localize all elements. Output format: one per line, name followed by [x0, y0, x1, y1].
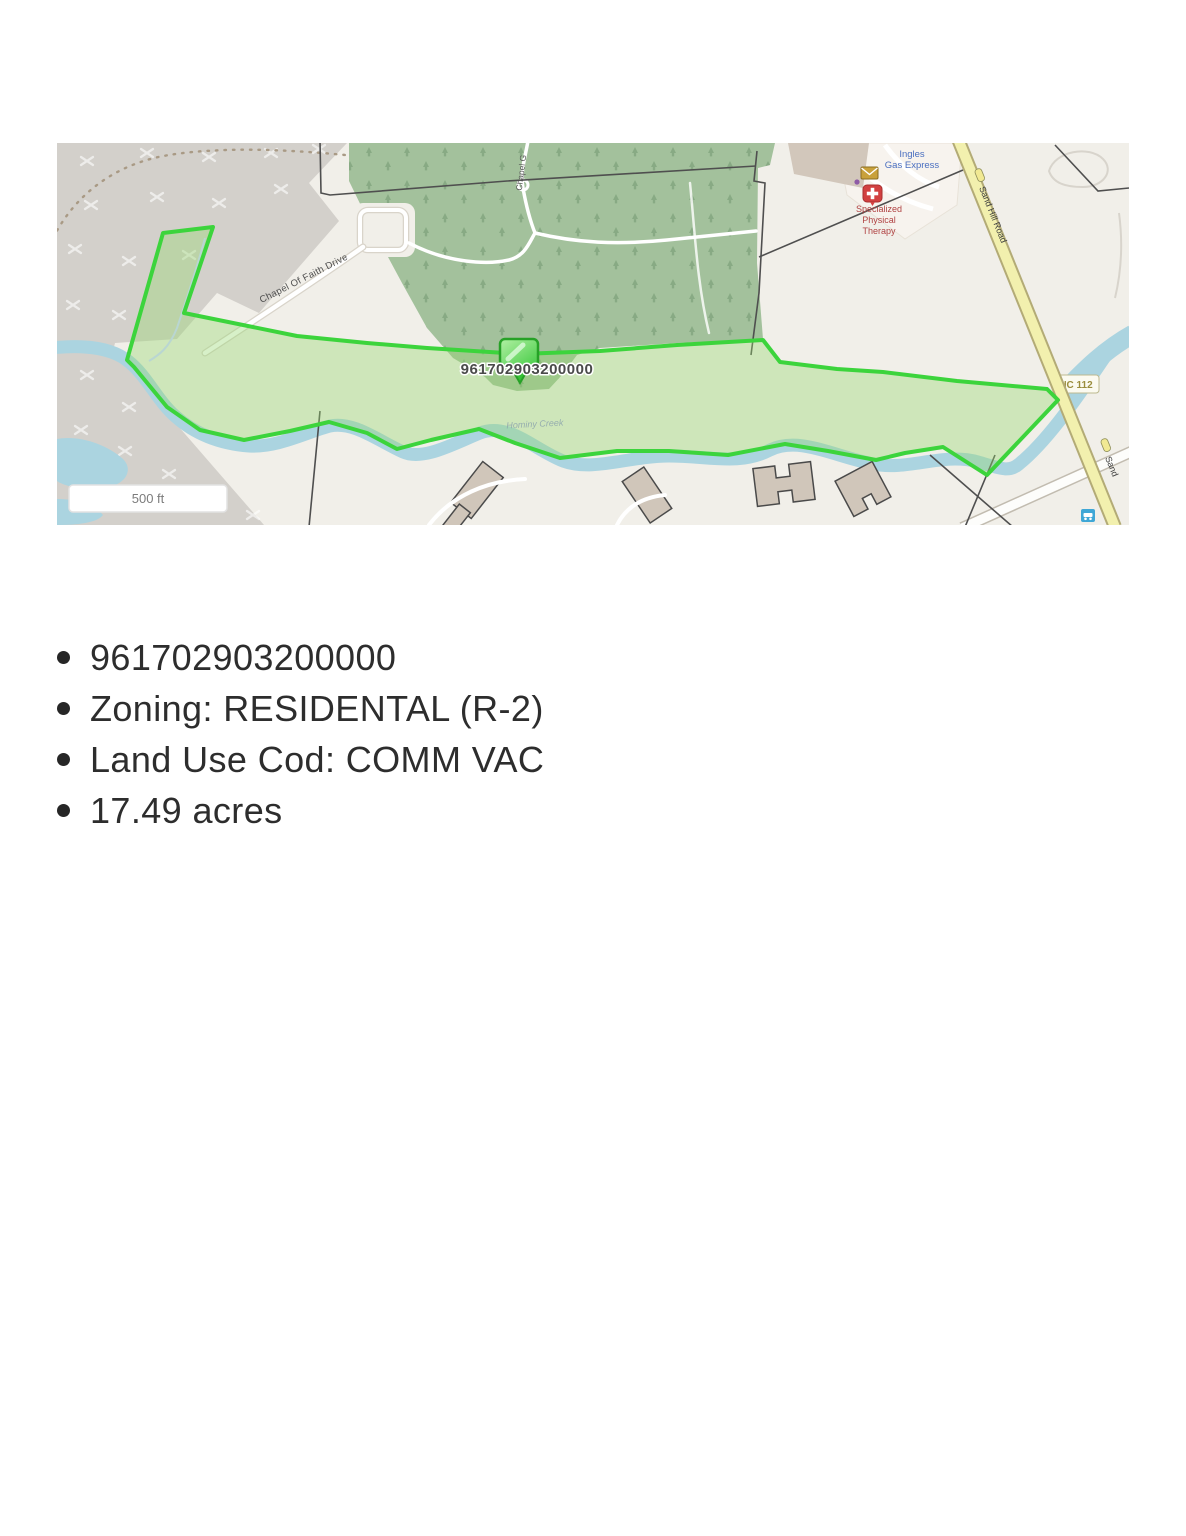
gas-express-label-line1: Ingles	[899, 149, 925, 160]
parcel-id-item: 961702903200000	[57, 632, 544, 683]
land-use-item: Land Use Cod: COMM VAC	[57, 734, 544, 785]
acreage-text: 17.49 acres	[90, 785, 283, 836]
therapy-label-line3: Therapy	[862, 226, 896, 236]
scale-bar-label: 500 ft	[132, 491, 165, 506]
carwash-icon	[1081, 509, 1095, 522]
parcel-id-text: 961702903200000	[90, 632, 396, 683]
parcel-marker-label: 961702903200000	[461, 361, 594, 378]
therapy-label-line2: Physical	[862, 215, 896, 225]
bullet-dot	[57, 651, 70, 664]
bullet-dot	[57, 804, 70, 817]
zoning-item: Zoning: RESIDENTAL (R-2)	[57, 683, 544, 734]
scale-bar: 500 ft	[69, 485, 227, 512]
gas-express-label-line2: Gas Express	[885, 160, 940, 171]
post-envelope-icon	[861, 167, 878, 179]
document-page: NC 112 Chapel Of Faith Drive Chapel G Sa…	[0, 0, 1186, 1536]
poi-dot-icon	[854, 179, 859, 184]
acreage-item: 17.49 acres	[57, 785, 544, 836]
parcel-map[interactable]: NC 112 Chapel Of Faith Drive Chapel G Sa…	[57, 143, 1129, 525]
parcel-details-list: 961702903200000 Zoning: RESIDENTAL (R-2)…	[57, 632, 544, 836]
land-use-text: Land Use Cod: COMM VAC	[90, 734, 544, 785]
therapy-label-line1: Specialized	[856, 204, 902, 214]
bullet-dot	[57, 702, 70, 715]
bullet-dot	[57, 753, 70, 766]
zoning-text: Zoning: RESIDENTAL (R-2)	[90, 683, 544, 734]
